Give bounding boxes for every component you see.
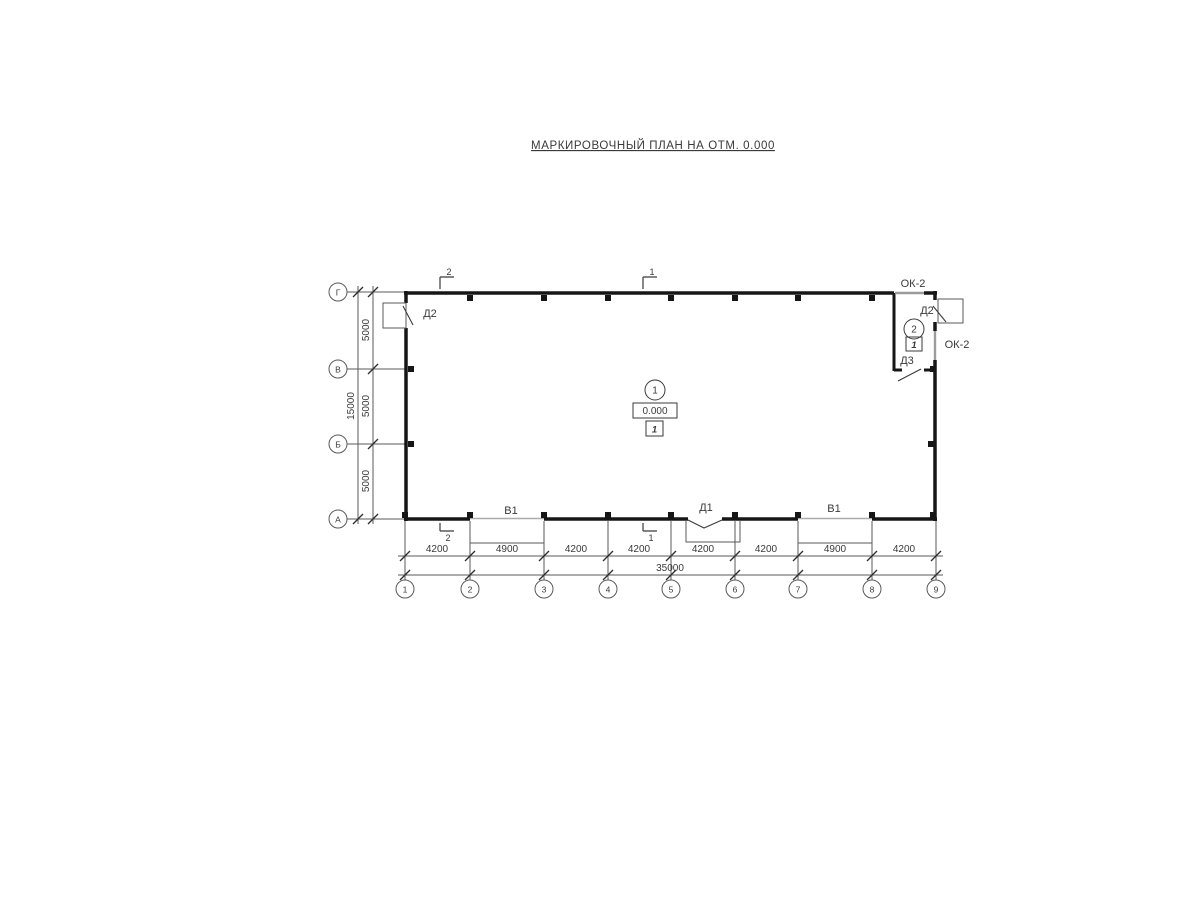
door-d2-right-swing xyxy=(933,306,946,322)
dim-bay-8: 4200 xyxy=(893,544,916,555)
floor-plan-drawing: МАРКИРОВОЧНЫЙ ПЛАН НА ОТМ. 0.000 5000 50… xyxy=(0,0,1200,900)
door-d2-right-leaf xyxy=(938,299,963,323)
left-dimension-labels: 5000 5000 5000 15000 xyxy=(346,318,372,492)
label-door-d2-left: Д2 xyxy=(423,308,437,320)
dim-left-5000-b: 5000 xyxy=(361,394,372,417)
dim-left-5000-a: 5000 xyxy=(361,318,372,341)
section-1-bottom-label: 1 xyxy=(648,533,653,543)
row-axis-bubbles: Г В Б А xyxy=(329,283,347,528)
gate-b1-left-recess xyxy=(470,521,544,543)
floor-mark-value: 1 xyxy=(911,340,916,351)
column-axis-bubbles: 1 2 3 4 5 6 7 8 9 xyxy=(396,580,945,598)
axis-label-4: 4 xyxy=(606,585,611,595)
section-2-bottom-symbol xyxy=(440,523,454,531)
label-gate-b1-right: В1 xyxy=(827,503,840,515)
dim-bay-1: 4200 xyxy=(426,544,449,555)
gate-b1-right-recess xyxy=(798,521,872,543)
label-door-d2-right: Д2 xyxy=(920,305,934,317)
room-annex-number: 2 xyxy=(911,325,917,336)
dim-left-15000: 15000 xyxy=(346,392,357,420)
axis-label-G: Г xyxy=(336,288,341,298)
door-d2-left-leaf xyxy=(383,303,406,328)
drawing-title: МАРКИРОВОЧНЫЙ ПЛАН НА ОТМ. 0.000 xyxy=(531,139,775,152)
room-hall-marks: 1 0.000 1 xyxy=(633,380,677,436)
section-2-bottom-label: 2 xyxy=(445,533,450,543)
dim-left-5000-c: 5000 xyxy=(361,469,372,492)
label-door-d1: Д1 xyxy=(699,502,713,514)
opening-labels: Д2 Д2 Д3 Д1 В1 В1 ОК-2 ОК-2 xyxy=(423,278,969,517)
dim-bay-3: 4200 xyxy=(565,544,588,555)
label-gate-b1-left: В1 xyxy=(504,505,517,517)
section-marks: 2 1 2 1 xyxy=(440,267,657,543)
room-hall-number: 1 xyxy=(652,386,658,397)
label-door-d3: Д3 xyxy=(900,355,914,367)
axis-label-5: 5 xyxy=(669,585,674,595)
axis-label-3: 3 xyxy=(542,585,547,595)
door-d1-swing xyxy=(688,520,722,528)
dim-bay-6: 4200 xyxy=(755,544,778,555)
drawing-sheet: МАРКИРОВОЧНЫЙ ПЛАН НА ОТМ. 0.000 5000 50… xyxy=(0,0,1200,900)
elevation-value: 0.000 xyxy=(642,406,667,417)
axis-label-B: Б xyxy=(335,440,341,450)
section-2-top-symbol xyxy=(440,277,454,289)
axis-label-7: 7 xyxy=(796,585,801,595)
dim-total-35000: 35000 xyxy=(656,563,684,574)
axis-label-A: А xyxy=(335,515,341,525)
dim-bay-4: 4200 xyxy=(628,544,651,555)
label-window-ok2-right: ОК-2 xyxy=(945,339,970,351)
section-2-top-label: 2 xyxy=(446,267,451,277)
section-1-bottom-symbol xyxy=(643,523,657,531)
doors xyxy=(383,299,963,528)
dim-bay-2: 4900 xyxy=(496,544,519,555)
axis-label-2: 2 xyxy=(468,585,473,595)
section-1-top-label: 1 xyxy=(649,267,654,277)
axis-label-V: В xyxy=(335,365,341,375)
axis-label-8: 8 xyxy=(870,585,875,595)
dim-bay-7: 4900 xyxy=(824,544,847,555)
axis-label-9: 9 xyxy=(934,585,939,595)
floor-mark-value: 1 xyxy=(652,425,657,436)
room-annex-marks: 2 1 xyxy=(904,319,924,351)
door-d2-left-swing xyxy=(403,306,413,325)
section-1-top-symbol xyxy=(643,277,657,289)
label-window-ok2-top: ОК-2 xyxy=(901,278,926,290)
axis-label-1: 1 xyxy=(403,585,408,595)
column-marks xyxy=(402,295,936,518)
axis-label-6: 6 xyxy=(733,585,738,595)
dim-bay-5: 4200 xyxy=(692,544,715,555)
exterior-walls xyxy=(404,291,937,521)
